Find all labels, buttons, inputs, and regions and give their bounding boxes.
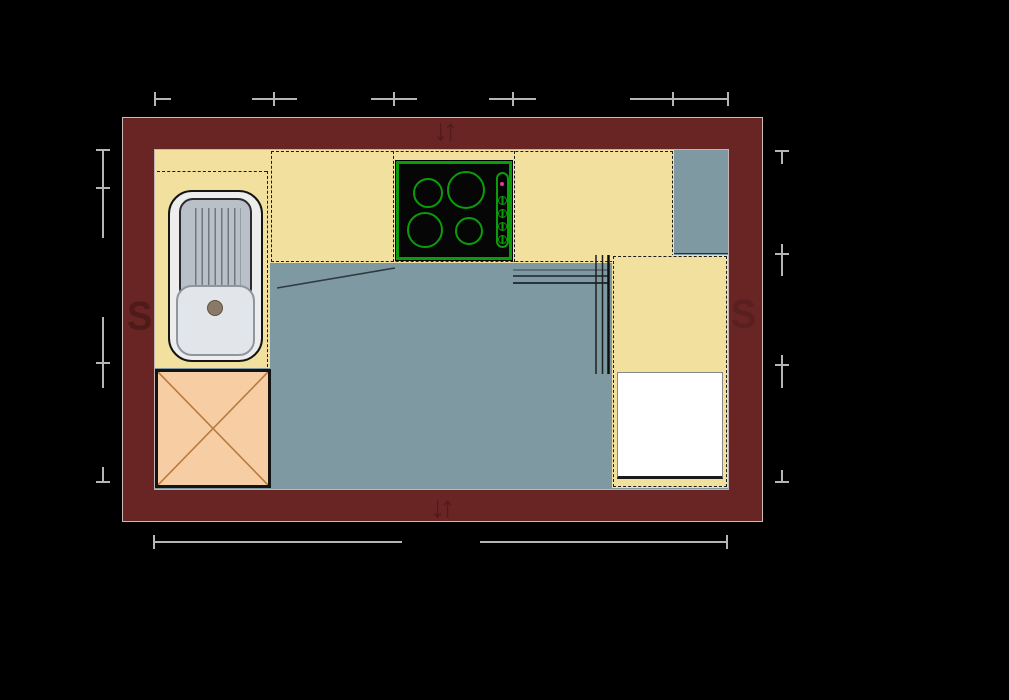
wall-symbol-left-s-icon: S — [127, 297, 152, 337]
floor-plan-canvas: ↓↑ ↓↑ S S — [0, 0, 1009, 700]
wall-symbol-top-arrows-icon: ↓↑ — [433, 116, 453, 146]
annotation-lines — [0, 0, 1009, 700]
wall-symbol-bottom-arrows-icon: ↓↑ — [430, 493, 450, 523]
wall-symbol-right-s-icon: S — [731, 295, 756, 335]
